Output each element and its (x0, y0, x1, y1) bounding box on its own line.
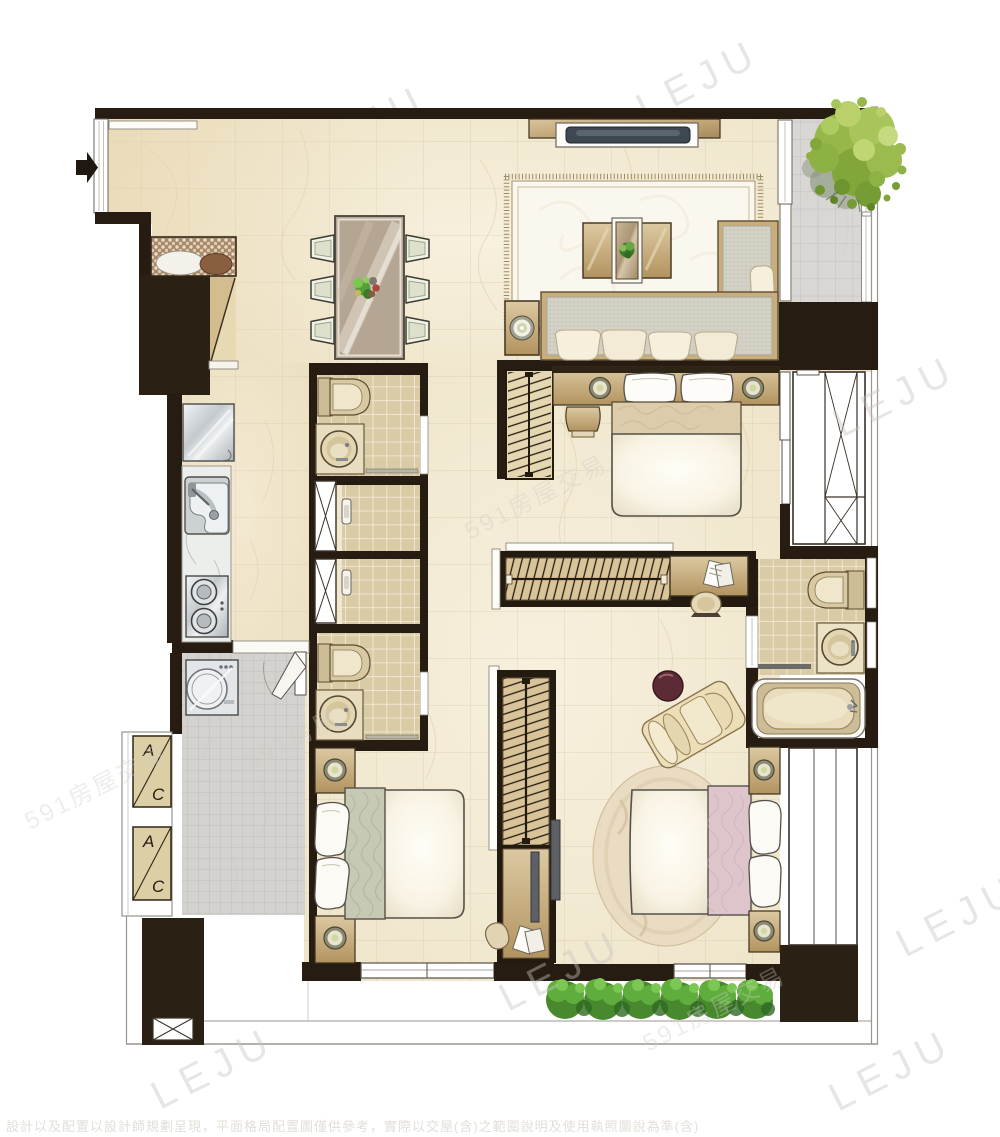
svg-text:C: C (152, 785, 165, 804)
svg-text:設計以及配置以設計師規劃呈現，平面格局配置圖僅供參考，實際以: 設計以及配置以設計師規劃呈現，平面格局配置圖僅供參考，實際以交屋(含)之範圍說明… (6, 1119, 699, 1134)
svg-text:A: A (142, 832, 154, 851)
svg-text:C: C (152, 877, 165, 896)
svg-text:LEJU: LEJU (889, 866, 1000, 966)
svg-text:LEJU: LEJU (822, 1020, 961, 1120)
